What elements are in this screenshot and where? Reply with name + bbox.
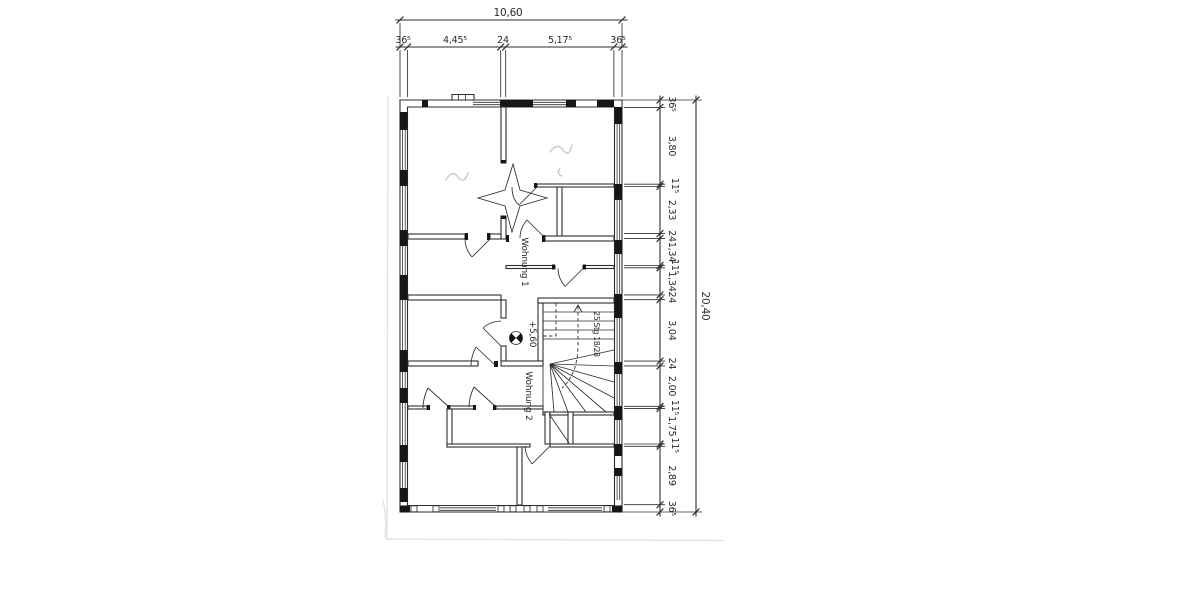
dim-top-seg-3: 5,17⁵ <box>548 35 572 46</box>
stair-walk-line <box>562 306 578 388</box>
dim-right-seg-8: 24 <box>666 291 677 303</box>
door-swing <box>520 220 545 238</box>
floor-plan-drawing: 10,60 36⁵ 4,45⁵ 24 5,17⁵ 36⁵ <box>0 0 1200 600</box>
dim-right-overall: 20,40 <box>699 291 711 320</box>
pencil-marks <box>446 145 572 180</box>
post-marker <box>498 506 504 512</box>
dim-right-seg-1: 3,80 <box>666 136 677 157</box>
right-dimension-chain: 20,40 36⁵ 3,80 11⁵ 2,33 24 1,34 11⁵ 1,34… <box>616 96 711 516</box>
door-swing <box>469 387 496 407</box>
stair-break-line <box>543 303 556 336</box>
label-stairs: 25 Stg 18/28 <box>592 311 601 357</box>
interior-walls <box>408 107 614 505</box>
door-swing <box>525 446 550 464</box>
dim-right-seg-14: 11⁵ <box>669 438 680 454</box>
windows <box>403 102 620 512</box>
dim-right-seg-15: 2,89 <box>666 465 677 486</box>
stairs: 25 Stg 18/28 <box>543 303 614 412</box>
door-swing <box>558 269 583 287</box>
door-swing <box>483 321 501 346</box>
dim-right-seg-7: 1,34 <box>666 271 677 292</box>
scanned-floor-plan-page: 10,60 36⁵ 4,45⁵ 24 5,17⁵ 36⁵ <box>0 0 1200 600</box>
dim-top-seg-4: 36⁵ <box>610 35 626 46</box>
post-marker <box>537 506 543 512</box>
top-dimension-chain: 10,60 36⁵ 4,45⁵ 24 5,17⁵ 36⁵ <box>395 7 627 97</box>
dim-right-seg-12: 11⁵ <box>669 400 680 416</box>
label-wohnung-2: Wohnung 2 <box>523 371 533 420</box>
post-marker <box>433 506 439 512</box>
dim-top-overall: 10,60 <box>493 7 522 19</box>
dim-right-seg-0: 36⁵ <box>666 96 677 112</box>
dim-right-seg-4: 24 <box>666 230 677 242</box>
post-marker <box>524 506 530 512</box>
dim-right-seg-16: 36⁵ <box>666 501 677 517</box>
door-swing <box>465 239 490 257</box>
dim-top-seg-1: 4,45⁵ <box>443 35 467 46</box>
dim-right-seg-10: 24 <box>666 358 677 370</box>
post-marker <box>411 506 417 512</box>
chimney <box>452 95 474 101</box>
dim-right-seg-3: 2,33 <box>666 200 677 221</box>
dim-right-seg-13: 1,75 <box>666 416 677 437</box>
dim-right-seg-2: 11⁵ <box>669 178 680 194</box>
dim-top-seg-2: 24 <box>497 35 509 46</box>
dim-right-seg-11: 2,00 <box>666 376 677 397</box>
dim-top-seg-0: 36⁵ <box>395 35 411 46</box>
level-marker: +5,60 <box>509 321 537 348</box>
dim-right-seg-9: 3,04 <box>666 320 677 341</box>
label-wohnung-1: Wohnung 1 <box>519 237 529 286</box>
closet-door <box>549 414 569 443</box>
post-marker <box>510 506 516 512</box>
label-level: +5,60 <box>527 321 537 348</box>
double-swing-door-star <box>478 164 547 232</box>
post-marker <box>604 506 610 512</box>
